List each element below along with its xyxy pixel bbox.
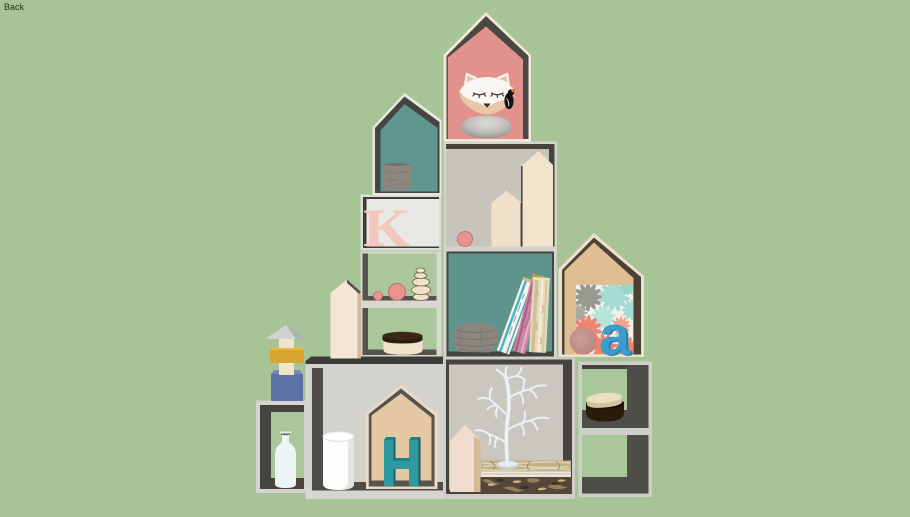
svg-text:a: a — [599, 304, 631, 367]
svg-text:Back: Back — [4, 2, 25, 12]
svg-text:K: K — [363, 199, 411, 258]
